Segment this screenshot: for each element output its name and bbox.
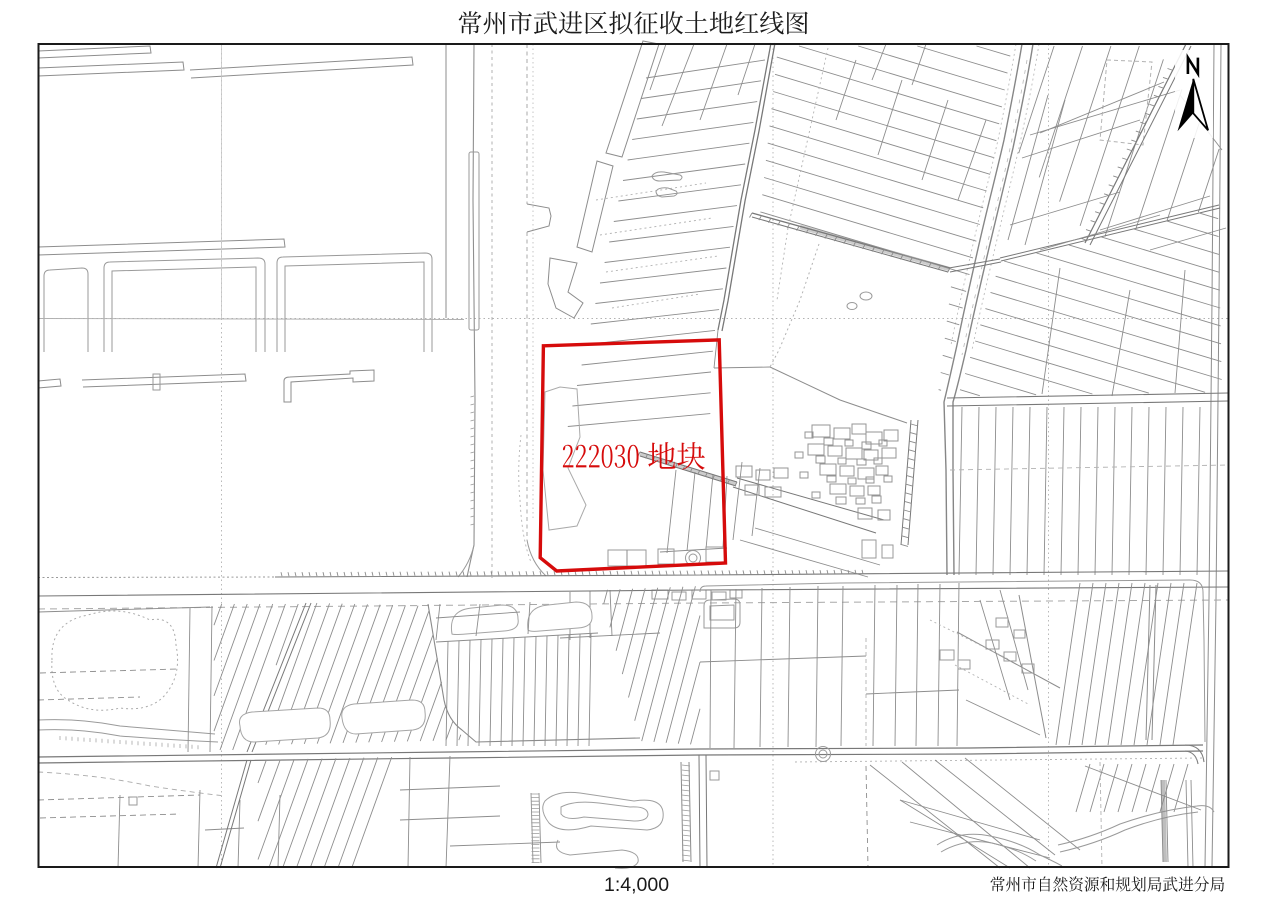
svg-text:1:4,000: 1:4,000: [604, 874, 669, 896]
